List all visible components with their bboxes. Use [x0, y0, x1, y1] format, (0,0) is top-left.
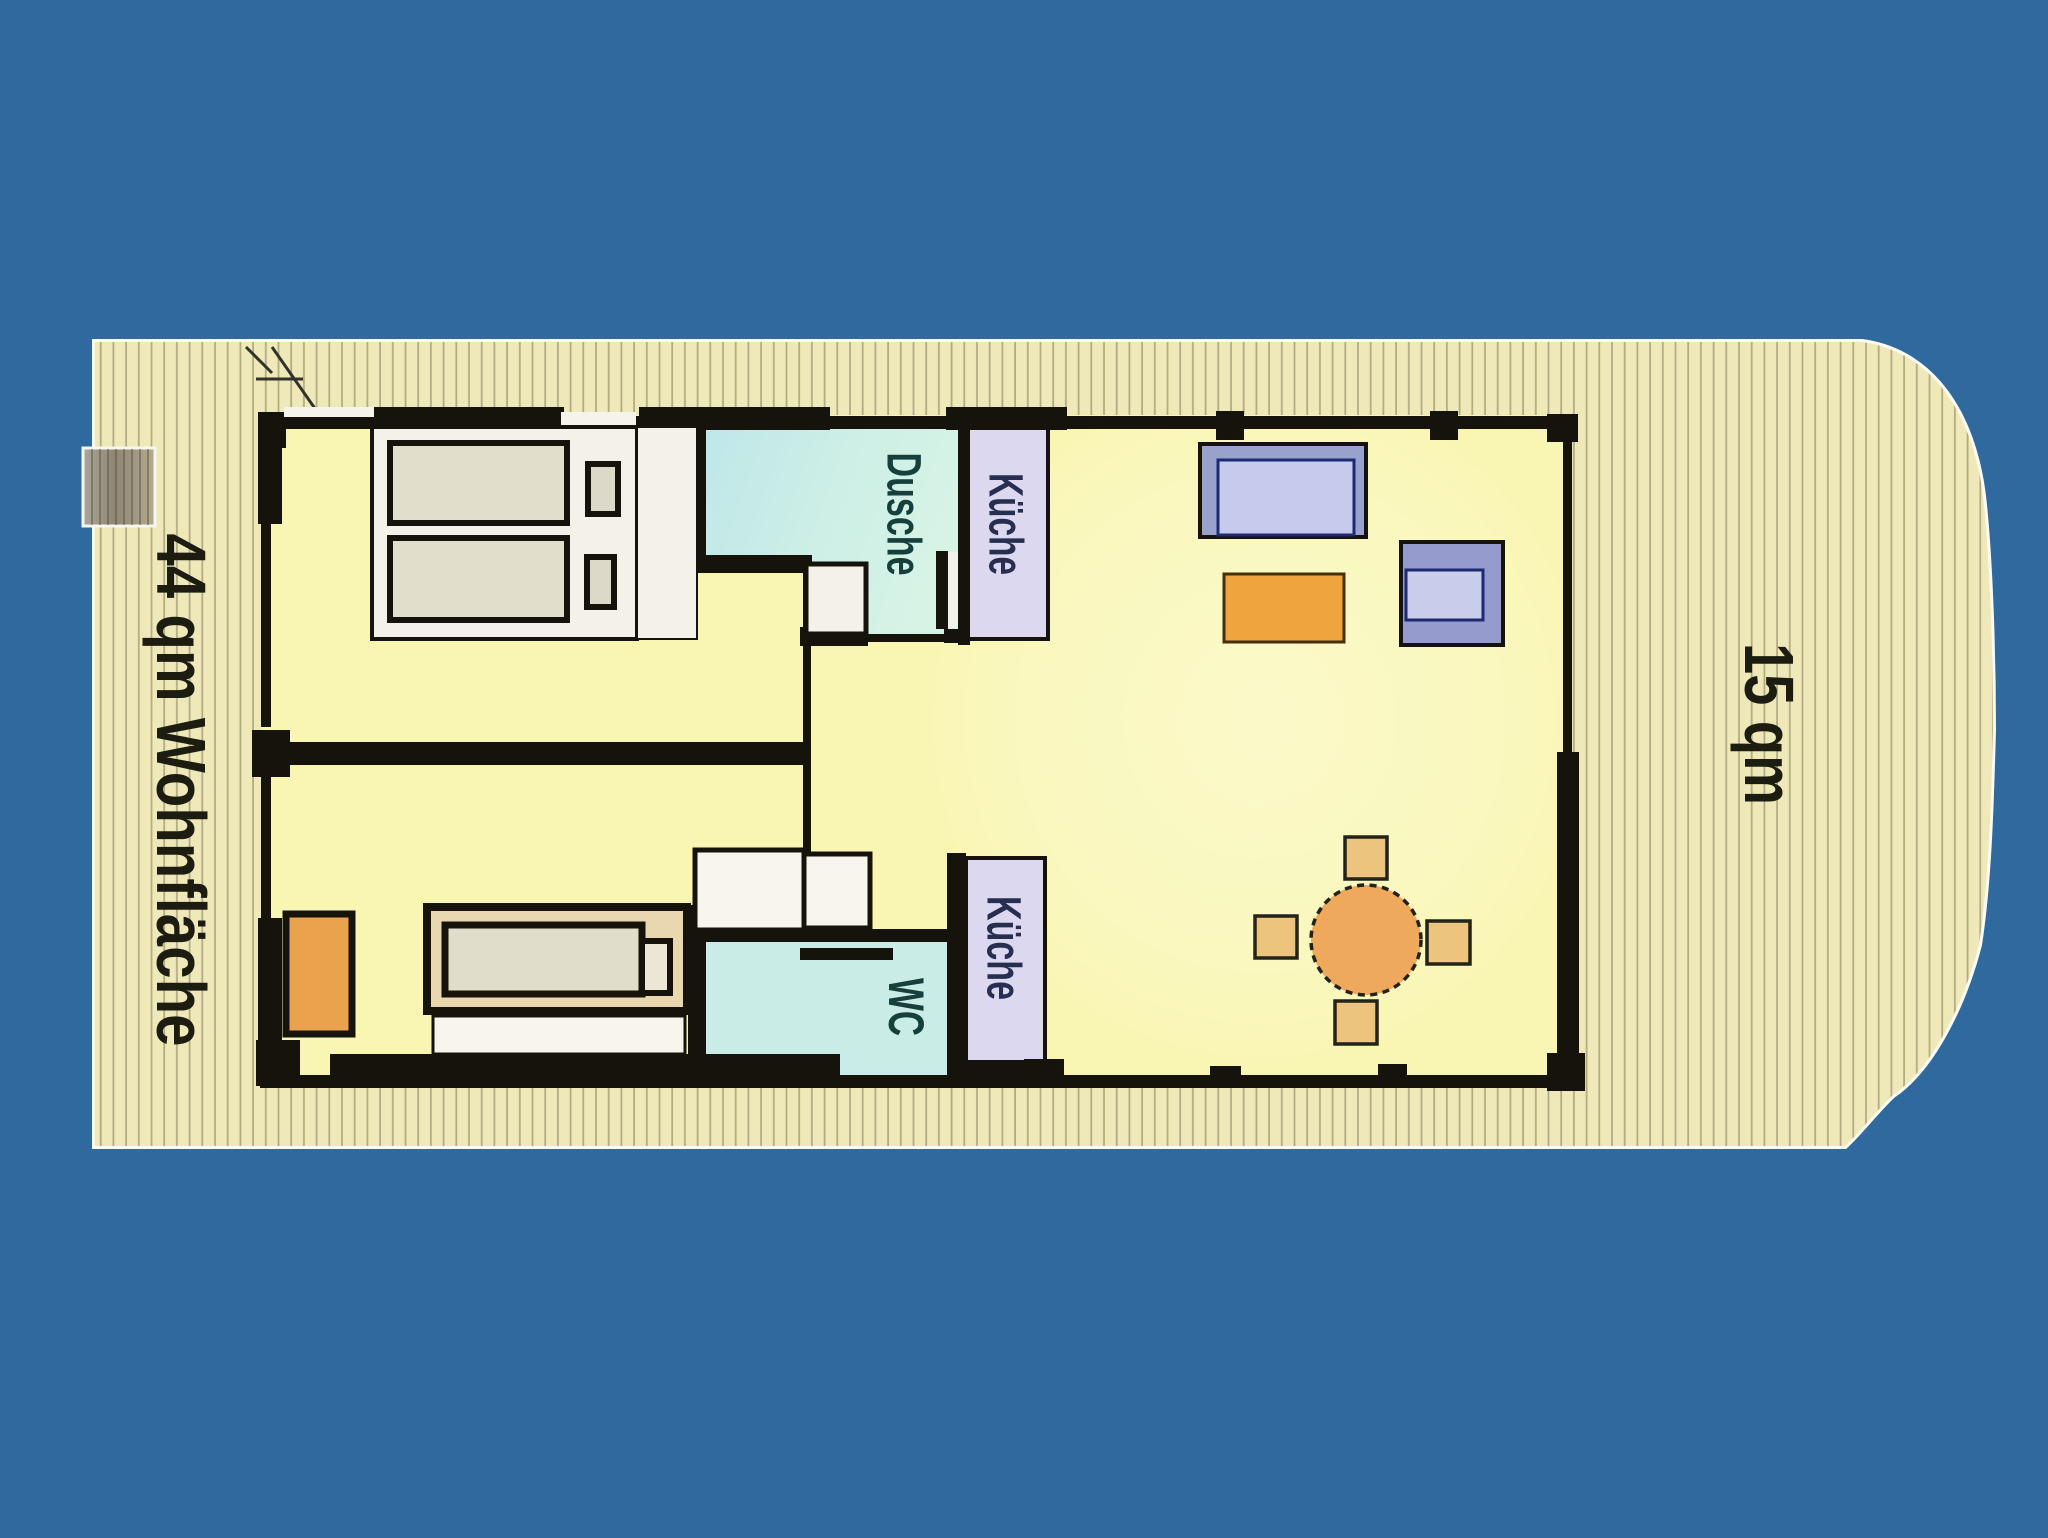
svg-text:44 qm Wohnfläche: 44 qm Wohnfläche	[142, 534, 220, 1047]
svg-text:Dusche: Dusche	[877, 453, 930, 576]
svg-text:15 qm: 15 qm	[1730, 643, 1808, 805]
svg-text:Küche: Küche	[977, 896, 1030, 1000]
svg-text:Küche: Küche	[979, 473, 1032, 575]
svg-text:WC: WC	[878, 978, 934, 1036]
